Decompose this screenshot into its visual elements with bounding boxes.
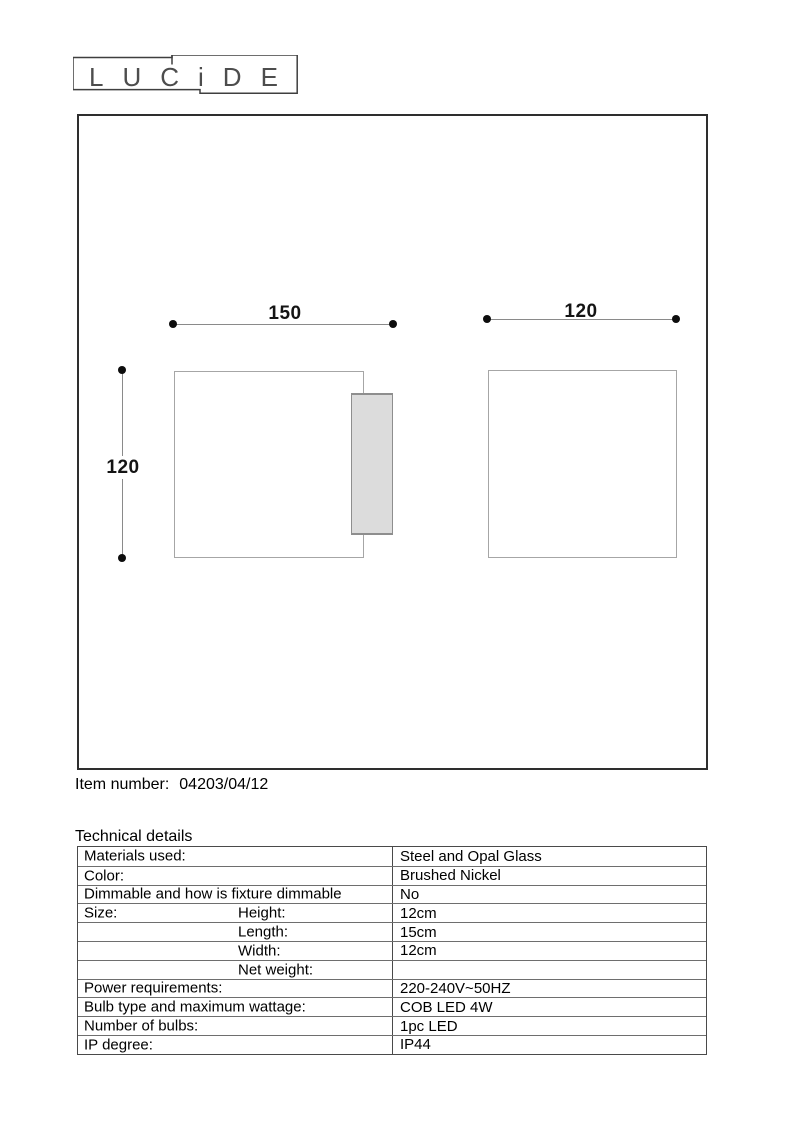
spec-label: IP degree:: [84, 1037, 153, 1052]
item-number-label: Item number:: [75, 776, 169, 793]
dim-dot: [483, 315, 491, 323]
glass-diffuser-bar: [351, 393, 393, 535]
spec-sublabel: Length:: [238, 925, 288, 940]
spec-value: COB LED 4W: [392, 998, 706, 1016]
spec-sublabel: Height:: [238, 906, 286, 921]
table-row: Power requirements: 220-240V~50HZ: [78, 979, 706, 998]
dimension-label-120-width: 120: [564, 302, 597, 321]
table-row: IP degree: IP44: [78, 1035, 706, 1054]
table-row: Color: Brushed Nickel: [78, 866, 706, 885]
spec-label: Materials used:: [84, 849, 186, 864]
spec-value: No: [392, 886, 706, 904]
spec-label: Bulb type and maximum wattage:: [84, 1000, 306, 1015]
lucide-logo: LUCiDE: [73, 55, 298, 94]
dim-dot: [118, 366, 126, 374]
item-number-value: 04203/04/12: [179, 776, 268, 793]
front-view-outline: [488, 370, 677, 558]
technical-details-title: Technical details: [75, 828, 192, 846]
spec-label: Color:: [84, 868, 124, 883]
spec-label: Dimmable and how is fixture dimmable: [84, 887, 342, 902]
dimension-label-150: 150: [268, 304, 301, 323]
logo-text: LUCiDE: [89, 62, 297, 92]
spec-value: Steel and Opal Glass: [392, 847, 706, 866]
dimension-line-150: [173, 324, 393, 325]
lucide-logo-icon: LUCiDE: [73, 55, 298, 94]
spec-value: Brushed Nickel: [392, 867, 706, 885]
table-row: Width: 12cm: [78, 941, 706, 960]
spec-label: Power requirements:: [84, 981, 222, 996]
spec-label: Number of bulbs:: [84, 1019, 198, 1034]
diagram-panel: 150 120 120: [77, 114, 708, 770]
dim-dot: [169, 320, 177, 328]
item-number: Item number:04203/04/12: [75, 776, 268, 794]
spec-value: [392, 961, 706, 979]
dim-dot: [118, 554, 126, 562]
spec-value: 15cm: [392, 923, 706, 941]
table-row: Length: 15cm: [78, 922, 706, 941]
table-row: Dimmable and how is fixture dimmable No: [78, 885, 706, 904]
spec-value: 220-240V~50HZ: [392, 980, 706, 998]
spec-value: 12cm: [392, 942, 706, 960]
spec-value: 12cm: [392, 904, 706, 922]
table-row: Materials used: Steel and Opal Glass: [78, 847, 706, 866]
dim-dot: [389, 320, 397, 328]
spec-sublabel: Net weight:: [238, 962, 313, 977]
spec-sublabel: Width:: [238, 943, 281, 958]
spec-value: IP44: [392, 1036, 706, 1054]
spec-value: 1pc LED: [392, 1017, 706, 1035]
table-row: Bulb type and maximum wattage: COB LED 4…: [78, 997, 706, 1016]
dim-dot: [672, 315, 680, 323]
side-view-outline: [174, 371, 364, 558]
table-row: Net weight:: [78, 960, 706, 979]
table-row: Size: Height: 12cm: [78, 903, 706, 922]
spec-label: Size:: [84, 906, 117, 921]
dimension-label-120-height: 120: [103, 456, 142, 479]
table-row: Number of bulbs: 1pc LED: [78, 1016, 706, 1035]
technical-details-table: Materials used: Steel and Opal Glass Col…: [77, 846, 707, 1055]
